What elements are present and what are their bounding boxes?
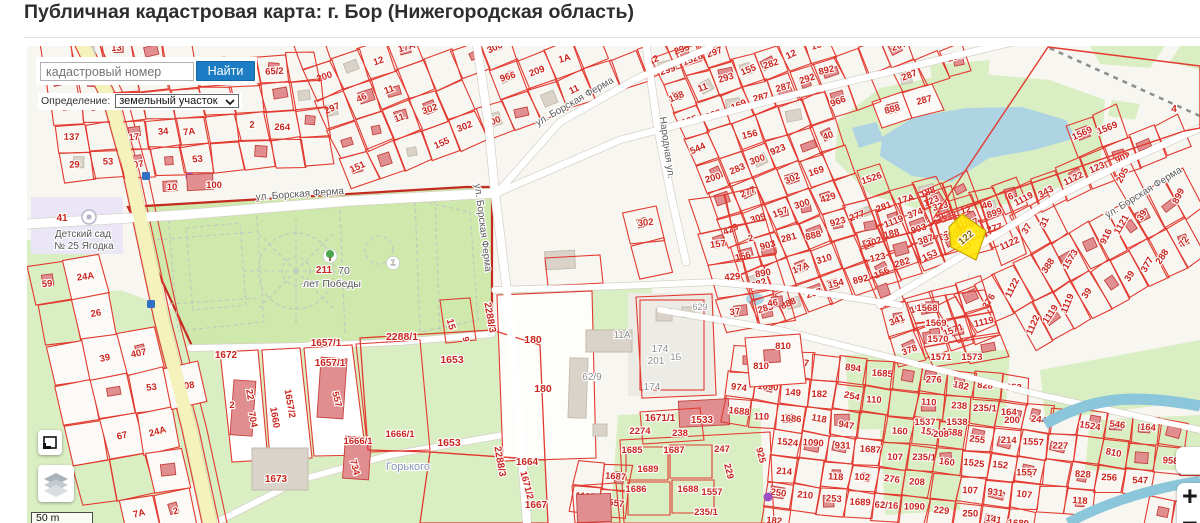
svg-text:1689: 1689 (637, 464, 658, 475)
svg-text:53: 53 (103, 156, 114, 167)
svg-text:1688: 1688 (677, 484, 698, 495)
svg-text:53: 53 (192, 154, 204, 166)
svg-text:160: 160 (892, 426, 908, 438)
svg-text:1570: 1570 (927, 334, 948, 345)
svg-text:№ 25 Ягодка: № 25 Ягодка (54, 241, 114, 252)
svg-text:182: 182 (766, 515, 783, 523)
svg-text:1686: 1686 (780, 413, 802, 425)
svg-text:1557: 1557 (701, 487, 722, 498)
svg-text:107: 107 (962, 485, 978, 497)
svg-text:1687: 1687 (859, 444, 881, 457)
svg-text:107: 107 (887, 452, 903, 463)
svg-text:4: 4 (1171, 104, 1177, 115)
svg-text:Горького: Горького (386, 461, 430, 473)
svg-text:828: 828 (1075, 469, 1091, 481)
svg-text:41: 41 (56, 213, 68, 224)
svg-text:1533: 1533 (691, 415, 714, 426)
svg-text:180: 180 (534, 383, 552, 395)
svg-text:214: 214 (776, 466, 793, 478)
svg-text:174: 174 (652, 344, 669, 355)
svg-text:110: 110 (921, 397, 937, 409)
svg-text:102: 102 (854, 471, 871, 483)
svg-text:1686: 1686 (625, 484, 646, 495)
svg-text:118: 118 (1072, 495, 1088, 507)
svg-text:180: 180 (524, 334, 542, 346)
svg-text:лет Победы: лет Победы (303, 278, 361, 290)
svg-text:931: 931 (835, 440, 852, 451)
svg-text:1685: 1685 (871, 368, 894, 381)
svg-text:235/1: 235/1 (973, 403, 998, 414)
svg-text:65/2: 65/2 (265, 66, 284, 78)
svg-text:1671/1: 1671/1 (645, 413, 676, 424)
svg-text:1538: 1538 (946, 417, 967, 428)
svg-text:810: 810 (753, 361, 769, 372)
svg-text:208: 208 (909, 477, 925, 489)
svg-text:2: 2 (249, 120, 255, 131)
svg-text:24А: 24А (76, 270, 95, 283)
svg-text:974: 974 (730, 381, 748, 394)
svg-text:1568: 1568 (916, 303, 937, 314)
svg-text:118: 118 (828, 471, 844, 483)
svg-text:235/1: 235/1 (912, 452, 937, 464)
svg-text:629: 629 (692, 302, 707, 312)
svg-text:1Б: 1Б (671, 352, 682, 362)
svg-text:214: 214 (1001, 435, 1018, 447)
svg-text:37: 37 (729, 306, 741, 318)
svg-text:164: 164 (1139, 422, 1156, 434)
svg-text:302: 302 (637, 217, 654, 229)
svg-text:201: 201 (648, 356, 665, 367)
svg-text:1537: 1537 (914, 417, 935, 428)
svg-text:1687: 1687 (605, 471, 627, 484)
svg-text:1664: 1664 (516, 457, 539, 468)
svg-text:10: 10 (167, 182, 178, 193)
svg-text:235/1: 235/1 (694, 507, 718, 518)
svg-text:255: 255 (969, 433, 987, 446)
svg-text:1687: 1687 (663, 445, 684, 456)
svg-text:17: 17 (128, 132, 140, 144)
svg-text:22: 22 (243, 388, 256, 400)
svg-text:2288/1: 2288/1 (386, 331, 418, 343)
svg-text:238: 238 (672, 428, 688, 439)
svg-text:208: 208 (933, 429, 949, 440)
svg-text:1653: 1653 (440, 354, 464, 366)
svg-text:546: 546 (1109, 419, 1126, 432)
svg-text:53: 53 (146, 382, 158, 394)
svg-text:211: 211 (316, 265, 333, 276)
svg-text:229: 229 (933, 505, 950, 518)
svg-text:1666/1: 1666/1 (343, 436, 373, 447)
svg-text:1667: 1667 (525, 500, 548, 511)
svg-text:152: 152 (992, 459, 1009, 472)
svg-text:547: 547 (1132, 475, 1148, 486)
svg-text:1653: 1653 (437, 437, 461, 449)
svg-text:137: 137 (64, 132, 80, 143)
svg-text:2: 2 (229, 400, 234, 411)
svg-text:26: 26 (90, 307, 102, 320)
svg-text:62/9: 62/9 (582, 372, 602, 383)
svg-text:250: 250 (962, 508, 978, 519)
svg-text:1689: 1689 (1007, 518, 1029, 523)
svg-text:1672: 1672 (215, 350, 238, 361)
svg-text:264: 264 (274, 122, 291, 133)
svg-text:110: 110 (866, 394, 882, 406)
svg-text:210: 210 (797, 489, 814, 502)
svg-text:13: 13 (111, 43, 122, 54)
svg-text:276: 276 (926, 374, 942, 385)
svg-text:1090: 1090 (802, 437, 824, 449)
svg-text:Детский сад: Детский сад (55, 229, 111, 240)
svg-text:1666/1: 1666/1 (385, 429, 415, 440)
svg-text:7А: 7А (182, 126, 196, 138)
svg-text:1557: 1557 (1022, 436, 1044, 448)
svg-text:1673: 1673 (265, 474, 288, 485)
svg-text:256: 256 (1101, 472, 1117, 484)
svg-text:1569: 1569 (925, 318, 946, 329)
svg-text:227: 227 (1052, 440, 1068, 451)
svg-text:1090: 1090 (904, 502, 925, 513)
svg-text:182: 182 (811, 389, 827, 400)
svg-text:46: 46 (767, 297, 779, 309)
svg-text:276: 276 (883, 473, 900, 486)
svg-text:1657/1: 1657/1 (315, 358, 346, 369)
svg-text:810: 810 (775, 341, 791, 352)
svg-text:110: 110 (754, 411, 770, 422)
svg-text:29: 29 (69, 159, 80, 170)
svg-text:894: 894 (844, 362, 862, 375)
svg-text:70: 70 (338, 265, 350, 277)
svg-text:931: 931 (987, 486, 1005, 499)
svg-text:1573: 1573 (961, 352, 982, 363)
svg-text:238: 238 (951, 400, 967, 412)
svg-text:1689: 1689 (849, 497, 871, 509)
svg-text:59: 59 (41, 278, 53, 290)
svg-text:149: 149 (785, 387, 802, 399)
svg-text:34: 34 (157, 126, 169, 138)
svg-text:1657/1: 1657/1 (311, 338, 342, 349)
svg-text:247: 247 (714, 444, 730, 455)
svg-text:157: 157 (709, 238, 726, 251)
svg-text:100: 100 (206, 180, 222, 191)
svg-text:160: 160 (938, 456, 955, 469)
svg-text:200: 200 (1004, 415, 1020, 426)
svg-text:1557: 1557 (1016, 467, 1037, 478)
svg-text:2274: 2274 (629, 426, 651, 437)
svg-text:253: 253 (825, 493, 842, 505)
svg-text:62/16: 62/16 (874, 500, 898, 512)
svg-text:11А: 11А (613, 330, 630, 341)
svg-text:107: 107 (1016, 488, 1033, 501)
svg-text:1685: 1685 (621, 445, 643, 456)
svg-text:174: 174 (644, 382, 661, 393)
svg-text:1571: 1571 (930, 352, 952, 363)
